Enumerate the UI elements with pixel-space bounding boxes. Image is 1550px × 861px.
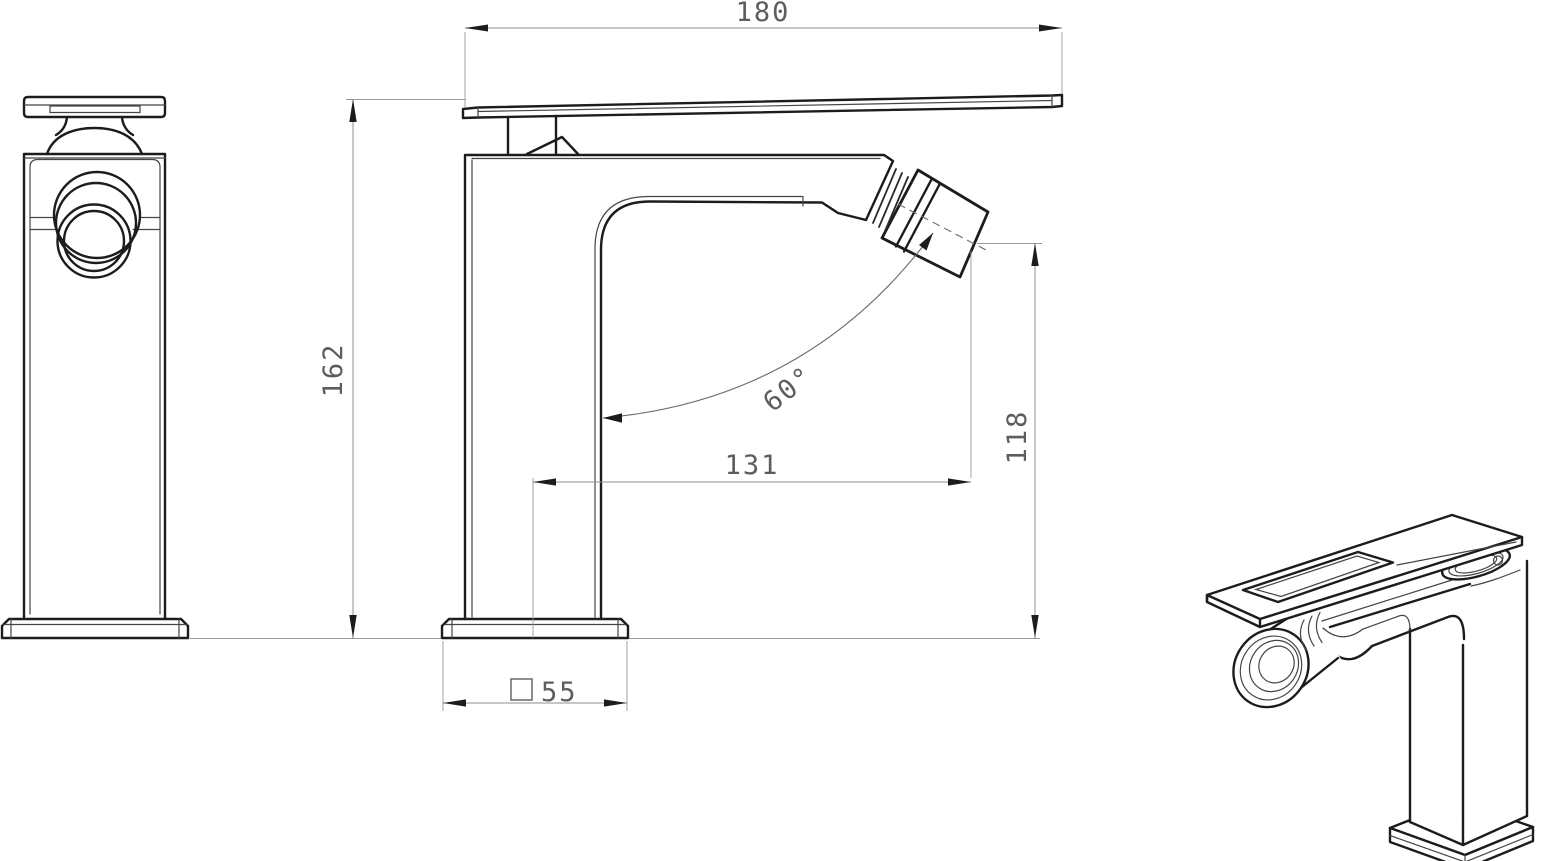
arrow-bottom	[349, 615, 356, 638]
extension-lines	[533, 251, 971, 638]
base-plate-side	[442, 619, 628, 638]
arrow-top	[349, 99, 356, 122]
dimension-label-162: 162	[318, 343, 349, 398]
handle-plate	[24, 97, 165, 117]
dimension-overall-width: 180	[465, 0, 1062, 107]
arrow-right	[1039, 25, 1062, 32]
dimension-label-180: 180	[736, 0, 791, 28]
dimension-label-131: 131	[725, 450, 780, 481]
arrow-left	[533, 478, 556, 485]
dimension-label-60deg: 60°	[758, 360, 820, 418]
base-plate	[2, 619, 188, 638]
dimension-overall-height: 162	[318, 99, 466, 638]
handle-slot	[50, 106, 140, 113]
base-inner-lines	[3, 619, 187, 638]
lever-stem	[508, 116, 556, 154]
arrow-left	[443, 699, 466, 706]
front-view	[2, 97, 188, 638]
extension-lines	[443, 641, 627, 711]
arrow-top	[1031, 243, 1038, 266]
dimension-label-118: 118	[1002, 410, 1033, 465]
dimension-label-55: 55	[541, 677, 578, 708]
extension-lines	[465, 32, 1062, 107]
body-outline	[24, 154, 165, 618]
dimension-spout-reach: 131	[533, 251, 971, 638]
dimension-outlet-height: 118	[977, 243, 1042, 638]
drawing-sheet: 180 162 131 118 60° 55	[0, 0, 1550, 861]
body-inner-panel	[30, 160, 160, 615]
arrow-right	[604, 699, 627, 706]
lever-cone	[527, 137, 578, 154]
dimension-base-width: 55	[443, 641, 627, 711]
dimension-aerator-angle: 60°	[758, 360, 820, 418]
arrow-left	[465, 25, 488, 32]
perspective-view	[1207, 515, 1533, 861]
arrow-right	[948, 478, 971, 485]
square-symbol	[511, 679, 532, 700]
column-fill	[1410, 558, 1527, 845]
swivel-arc-arrow-left	[603, 413, 622, 422]
body-silhouette	[465, 155, 893, 619]
aerator-rim-outer	[58, 205, 131, 278]
aerator-flange-inner	[56, 183, 136, 263]
arrow-bottom	[1031, 615, 1038, 638]
base-inner-lines-side	[444, 619, 626, 638]
faucet-technical-drawing: 180 162 131 118 60° 55	[0, 0, 1550, 861]
